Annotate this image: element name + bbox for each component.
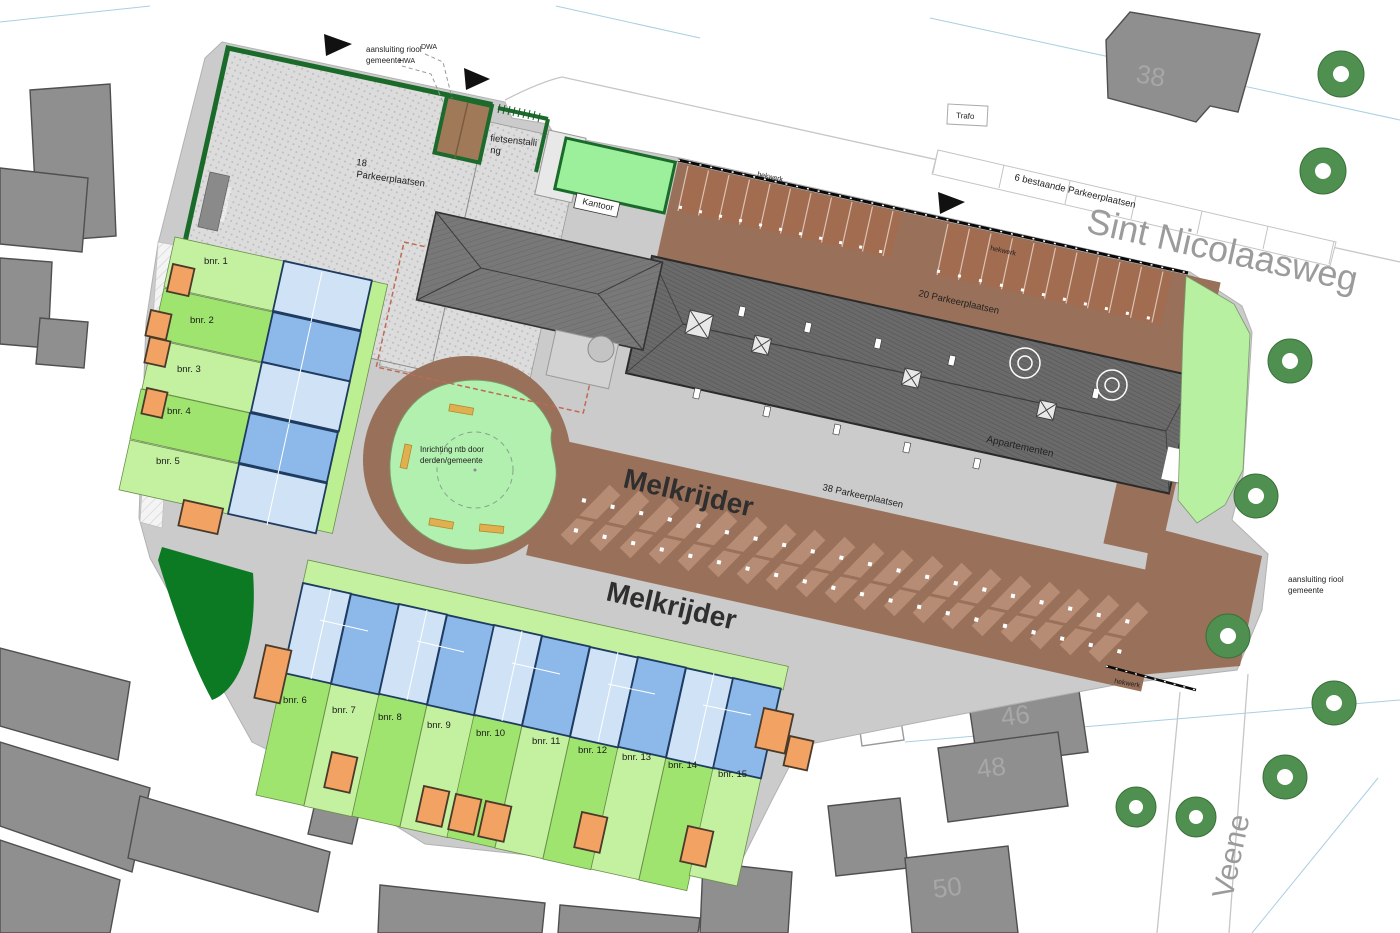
- existing-building: [378, 885, 545, 933]
- label-bnr-13: bnr. 13: [622, 752, 651, 763]
- house-number-50: 50: [931, 871, 963, 904]
- label-bnr-2: bnr. 2: [190, 315, 214, 326]
- label-fietsenstalling-2: ng: [490, 145, 502, 157]
- label-bnr-11: bnr. 11: [532, 736, 560, 747]
- label-hwa: HWA: [399, 58, 415, 65]
- existing-building: [36, 318, 88, 368]
- cadastral-line: [556, 6, 700, 38]
- arrow-icon: [464, 68, 490, 90]
- label-gemeente-right: gemeente: [1288, 586, 1324, 595]
- site-plan-canvas: aansluiting riool gemeente DWA HWA 18 Pa…: [0, 0, 1400, 933]
- label-bnr-6: bnr. 6: [283, 695, 307, 706]
- existing-building: [0, 168, 88, 252]
- label-bnr-14: bnr. 14: [668, 760, 697, 771]
- label-inrichting-1: Inrichting ntb door: [420, 445, 484, 454]
- label-inrichting-2: derden/gemeente: [420, 456, 483, 465]
- cadastral-line: [0, 6, 150, 22]
- label-bnr-3: bnr. 3: [177, 364, 201, 375]
- existing-building: [128, 796, 330, 912]
- existing-building-38: [1106, 12, 1260, 122]
- label-trafo: Trafo: [956, 111, 975, 121]
- label-bnr-9: bnr. 9: [427, 720, 451, 731]
- label-bnr-12: bnr. 12: [578, 745, 607, 756]
- label-bnr-4: bnr. 4: [167, 406, 191, 417]
- existing-building: [828, 798, 908, 876]
- label-aansluiting-riool-right: aansluiting riool: [1288, 575, 1344, 584]
- house-number-46: 46: [999, 699, 1031, 732]
- utility-circle: [588, 336, 614, 362]
- existing-building: [558, 905, 700, 933]
- label-bnr-15: bnr. 15: [718, 769, 747, 780]
- island-center-dot: [474, 469, 477, 472]
- house-number-38: 38: [1134, 58, 1168, 93]
- label-bnr-1: bnr. 1: [204, 256, 228, 267]
- label-bnr-7: bnr. 7: [332, 705, 356, 716]
- house-number-48: 48: [975, 751, 1007, 784]
- site-plan-drawing: aansluiting riool gemeente DWA HWA 18 Pa…: [0, 0, 1400, 933]
- cadastral-line: [1252, 778, 1378, 933]
- label-gemeente-left: gemeente: [366, 56, 402, 65]
- label-bnr-8: bnr. 8: [378, 712, 402, 723]
- arrow-icon: [938, 192, 965, 214]
- existing-building: [0, 648, 130, 760]
- arrow-icon: [324, 34, 352, 56]
- label-bnr-5: bnr. 5: [156, 456, 180, 467]
- label-bnr-10: bnr. 10: [476, 728, 505, 739]
- label-18: 18: [356, 157, 368, 169]
- label-aansluiting-riool-left: aansluiting riool: [366, 45, 422, 54]
- label-dwa: DWA: [421, 44, 437, 51]
- turning-island: [390, 380, 556, 550]
